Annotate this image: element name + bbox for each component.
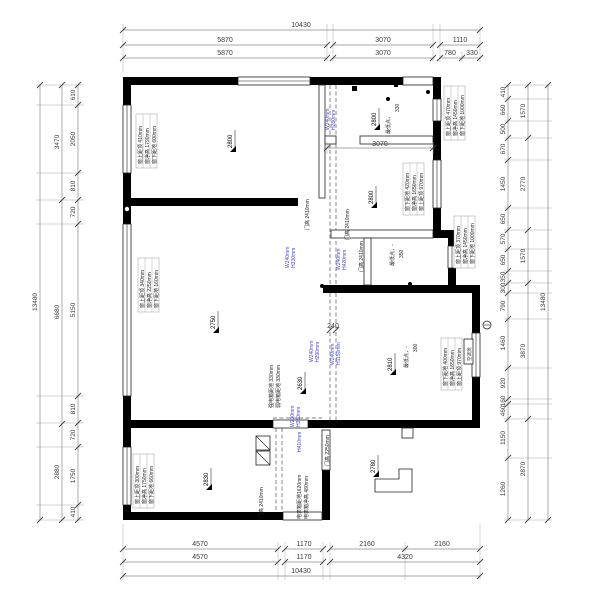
dim: 790 bbox=[500, 300, 507, 311]
svg-text:窗净高 1650mm: 窗净高 1650mm bbox=[449, 350, 456, 386]
dim: 570 bbox=[500, 233, 507, 244]
dim: 650 bbox=[500, 254, 507, 265]
low-point-label: 最低点，- bbox=[389, 244, 396, 266]
dim: 2870 bbox=[520, 461, 527, 476]
equipment-label: 弱电箱距地 330mm bbox=[275, 365, 282, 408]
dimensions-top: 10430 5870 3070 1110 5870 3070 780 330 bbox=[120, 22, 483, 72]
door-label: 门高 2410mm bbox=[258, 487, 265, 518]
dim: 1570 bbox=[520, 103, 527, 118]
window-annotation: 窗下距地 400mm 窗净高 1650mm 窗上距顶 970mm bbox=[441, 338, 463, 390]
dim: 1110 bbox=[453, 37, 468, 44]
ceiling-height-marker: 2800 bbox=[369, 186, 377, 208]
point-symbol bbox=[446, 286, 450, 290]
partition bbox=[325, 136, 336, 144]
door-label: 门高 2410mm bbox=[358, 241, 365, 272]
wall-segment bbox=[472, 377, 480, 428]
wall-segment bbox=[433, 121, 441, 160]
dimensions-right: 410 660 500 670 1450 650 570 650 350 300… bbox=[500, 82, 552, 523]
dim: 5150 bbox=[70, 302, 77, 317]
window-annotation: 窗上距顶 410mm 窗净高 1790mm 窗下距地 600mm bbox=[136, 114, 158, 168]
dim: 1170 bbox=[296, 554, 311, 561]
window-annotation: 窗上距顶 370mm 窗净高 1450mm 窗下距地 1000mm bbox=[454, 216, 476, 268]
point-symbol bbox=[408, 282, 412, 286]
dim: 4570 bbox=[192, 541, 208, 548]
point-symbol bbox=[343, 286, 347, 290]
dim: 6680 bbox=[54, 304, 61, 319]
dim: 670 bbox=[500, 143, 507, 154]
dim: 3870 bbox=[520, 343, 527, 358]
window-annotation: 窗下距地 420mm 窗净高 1650mm 窗上距顶 970mm bbox=[403, 163, 425, 215]
dim: 2160 bbox=[434, 541, 450, 548]
dim: 1260 bbox=[500, 481, 507, 496]
ac-hole-label: 空调洞 bbox=[466, 347, 473, 361]
svg-text:窗上距顶 970mm: 窗上距顶 970mm bbox=[456, 348, 463, 386]
dim: 350 bbox=[500, 271, 507, 282]
flue-outline bbox=[375, 469, 412, 492]
dim: 410 bbox=[500, 86, 507, 97]
svg-text:2800: 2800 bbox=[369, 190, 375, 204]
dim: 5870 bbox=[217, 50, 233, 57]
door-label: 门高 2410mm bbox=[304, 199, 311, 230]
partition bbox=[360, 136, 433, 144]
door-label: 门高 2410mm bbox=[344, 209, 351, 240]
svg-text:2630: 2630 bbox=[298, 376, 304, 390]
window-annotation: 窗上距顶 340mm 窗净高 2250mm 窗下距地 160mm bbox=[138, 258, 160, 312]
ceiling-height-marker: 2810 bbox=[388, 353, 396, 375]
wall-segment bbox=[123, 420, 273, 428]
beam-labels: W240mm H280mm W240mm H330mm W240mm H420m… bbox=[285, 109, 348, 452]
dim: 3470 bbox=[54, 134, 61, 149]
wall-stud bbox=[394, 83, 398, 87]
svg-text:窗上距顶 470mm: 窗上距顶 470mm bbox=[445, 98, 452, 136]
dim: 460 bbox=[500, 405, 507, 416]
dim: 2880 bbox=[54, 464, 61, 479]
svg-text:窗下距地 660mm: 窗下距地 660mm bbox=[148, 466, 155, 504]
dim: 330 bbox=[466, 50, 478, 57]
svg-text:窗净高 1450mm: 窗净高 1450mm bbox=[462, 228, 469, 264]
svg-text:窗下距地 160mm: 窗下距地 160mm bbox=[153, 270, 160, 308]
partition bbox=[364, 238, 371, 285]
beam-label: H330mm bbox=[291, 248, 297, 268]
ceiling-height-marker: 2750 bbox=[211, 311, 219, 333]
dim: 3070 bbox=[375, 50, 391, 57]
ceiling-height-marker: 2800 bbox=[228, 130, 236, 152]
wall-segment bbox=[433, 77, 441, 99]
wall-segment bbox=[472, 293, 480, 333]
partitions bbox=[273, 77, 433, 520]
ceiling-height-marker: 2800 bbox=[372, 108, 380, 130]
dim: 610 bbox=[70, 89, 77, 100]
dim-bottom-overall: 10430 bbox=[291, 568, 311, 575]
partition bbox=[319, 85, 325, 198]
window-annotation: 窗上距顶 470mm 窗净高 1450mm 窗下距地 1000mm bbox=[444, 86, 466, 140]
dim: 2160 bbox=[359, 541, 375, 548]
dim: 780 bbox=[444, 50, 456, 57]
beam-label: H410mm bbox=[297, 432, 303, 452]
dim-right-overall: 13480 bbox=[540, 293, 547, 311]
beam-label: H420mm bbox=[342, 250, 348, 270]
dim: 1750 bbox=[70, 468, 77, 483]
dim-room-width: 3070 bbox=[372, 141, 388, 148]
dim: 1450 bbox=[500, 176, 507, 191]
wall-segment bbox=[322, 470, 330, 520]
dim: 650 bbox=[500, 213, 507, 224]
beam-label: H1150mm bbox=[336, 342, 342, 365]
svg-text:2830: 2830 bbox=[204, 472, 210, 486]
svg-text:2810: 2810 bbox=[388, 357, 394, 371]
point-symbol bbox=[320, 284, 324, 288]
dim: 810 bbox=[70, 403, 77, 414]
wall-stud bbox=[352, 86, 357, 91]
dim: 660 bbox=[500, 104, 507, 115]
svg-text:2800: 2800 bbox=[372, 112, 378, 126]
dim: 720 bbox=[70, 429, 77, 440]
dim: 2050 bbox=[70, 131, 77, 146]
svg-text:2800: 2800 bbox=[228, 134, 234, 148]
dim: 1460 bbox=[500, 335, 507, 350]
equipment-label: 强电箱距地 330mm bbox=[268, 365, 275, 408]
svg-text:窗下距地 420mm: 窗下距地 420mm bbox=[404, 173, 411, 211]
svg-text:窗下距地 600mm: 窗下距地 600mm bbox=[151, 126, 158, 164]
beam-label: H330mm bbox=[296, 407, 302, 427]
equipment-label: 电表箱距地1620mm bbox=[296, 475, 303, 519]
dim: 410 bbox=[70, 506, 77, 517]
dimensions-bottom: 4570 1170 2160 2160 4570 1170 4320 10430 bbox=[120, 524, 483, 580]
dim: 4570 bbox=[192, 554, 208, 561]
beam-label: H280mm bbox=[331, 110, 337, 130]
window-annotations: 窗上距顶 410mm 窗净高 1790mm 窗下距地 600mm 窗上距顶 47… bbox=[133, 86, 476, 508]
dim: 160 bbox=[500, 395, 507, 406]
svg-text:窗下距地 1000mm: 窗下距地 1000mm bbox=[459, 95, 466, 136]
wall-notch bbox=[402, 428, 413, 438]
svg-text:窗净高 1790mm: 窗净高 1790mm bbox=[144, 128, 151, 164]
wall-segment bbox=[448, 268, 456, 285]
dimensions-left: 13480 3470 6680 2880 610 2050 810 720 51… bbox=[32, 82, 84, 523]
point-symbol bbox=[426, 90, 430, 94]
dim: 4320 bbox=[397, 554, 413, 561]
beam-label: H290mm bbox=[315, 342, 321, 362]
ceiling-height-marker: 2830 bbox=[204, 468, 212, 490]
dim: 1570 bbox=[520, 248, 527, 263]
wall-segment bbox=[308, 420, 472, 428]
svg-text:窗上距顶 410mm: 窗上距顶 410mm bbox=[137, 126, 144, 164]
svg-text:窗上距顶 970mm: 窗上距顶 970mm bbox=[418, 173, 425, 211]
wall-segment bbox=[123, 77, 131, 105]
low-point-label: 最低点， bbox=[385, 114, 392, 134]
dim: 500 bbox=[500, 123, 507, 134]
window-annotation: 窗上距顶 300mm 窗净高 1750mm 窗下距地 660mm bbox=[133, 454, 155, 508]
svg-text:窗下距地 400mm: 窗下距地 400mm bbox=[442, 348, 449, 386]
svg-text:窗净高 1750mm: 窗净高 1750mm bbox=[141, 468, 148, 504]
wall-segment bbox=[123, 198, 298, 206]
floor-plan-svg: 10430 5870 3070 1110 5870 3070 780 330 4… bbox=[0, 0, 600, 600]
svg-text:窗下距地 1000mm: 窗下距地 1000mm bbox=[469, 223, 476, 264]
equipment-label: 电表箱净高 480mm bbox=[303, 476, 310, 519]
svg-text:窗净高 1450mm: 窗净高 1450mm bbox=[452, 100, 459, 136]
low-point-value: 300 bbox=[413, 343, 419, 352]
wall-segment bbox=[433, 230, 456, 238]
dim: 300 bbox=[500, 282, 507, 293]
door-opening bbox=[403, 77, 433, 85]
low-point-value: 330 bbox=[395, 103, 401, 112]
dim-top-overall: 10430 bbox=[291, 22, 311, 29]
dim-left-overall: 13480 bbox=[32, 293, 39, 311]
dim: 720 bbox=[70, 206, 77, 217]
wall-segment bbox=[123, 77, 238, 85]
svg-text:窗净高 1650mm: 窗净高 1650mm bbox=[411, 175, 418, 211]
svg-text:窗上距顶 300mm: 窗上距顶 300mm bbox=[134, 466, 141, 504]
dim-beam-width: 240 bbox=[327, 323, 339, 330]
wall-segment bbox=[310, 77, 403, 85]
svg-text:2780: 2780 bbox=[371, 459, 377, 473]
svg-text:窗上距顶 340mm: 窗上距顶 340mm bbox=[139, 270, 146, 308]
dim: 3070 bbox=[375, 37, 391, 44]
svg-text:2750: 2750 bbox=[211, 315, 217, 329]
point-symbol bbox=[386, 97, 390, 101]
door-label: 门高 2250mm bbox=[324, 435, 331, 466]
ceiling-height-marker: 2780 bbox=[371, 455, 379, 477]
low-point-label: 最低点，- bbox=[403, 346, 410, 368]
dim: 5870 bbox=[217, 37, 233, 44]
ceiling-height-marker: 2630 bbox=[298, 372, 306, 394]
dim: 1150 bbox=[500, 431, 507, 445]
dim: 2770 bbox=[520, 176, 527, 191]
dim: 810 bbox=[70, 180, 77, 191]
svg-text:窗上距顶 370mm: 窗上距顶 370mm bbox=[455, 226, 462, 264]
low-point-value: 350 bbox=[399, 249, 405, 258]
svg-text:窗净高 2250mm: 窗净高 2250mm bbox=[146, 272, 153, 308]
dim: 920 bbox=[500, 377, 507, 388]
pipe-symbol bbox=[125, 207, 130, 212]
dim: 1170 bbox=[296, 541, 311, 548]
